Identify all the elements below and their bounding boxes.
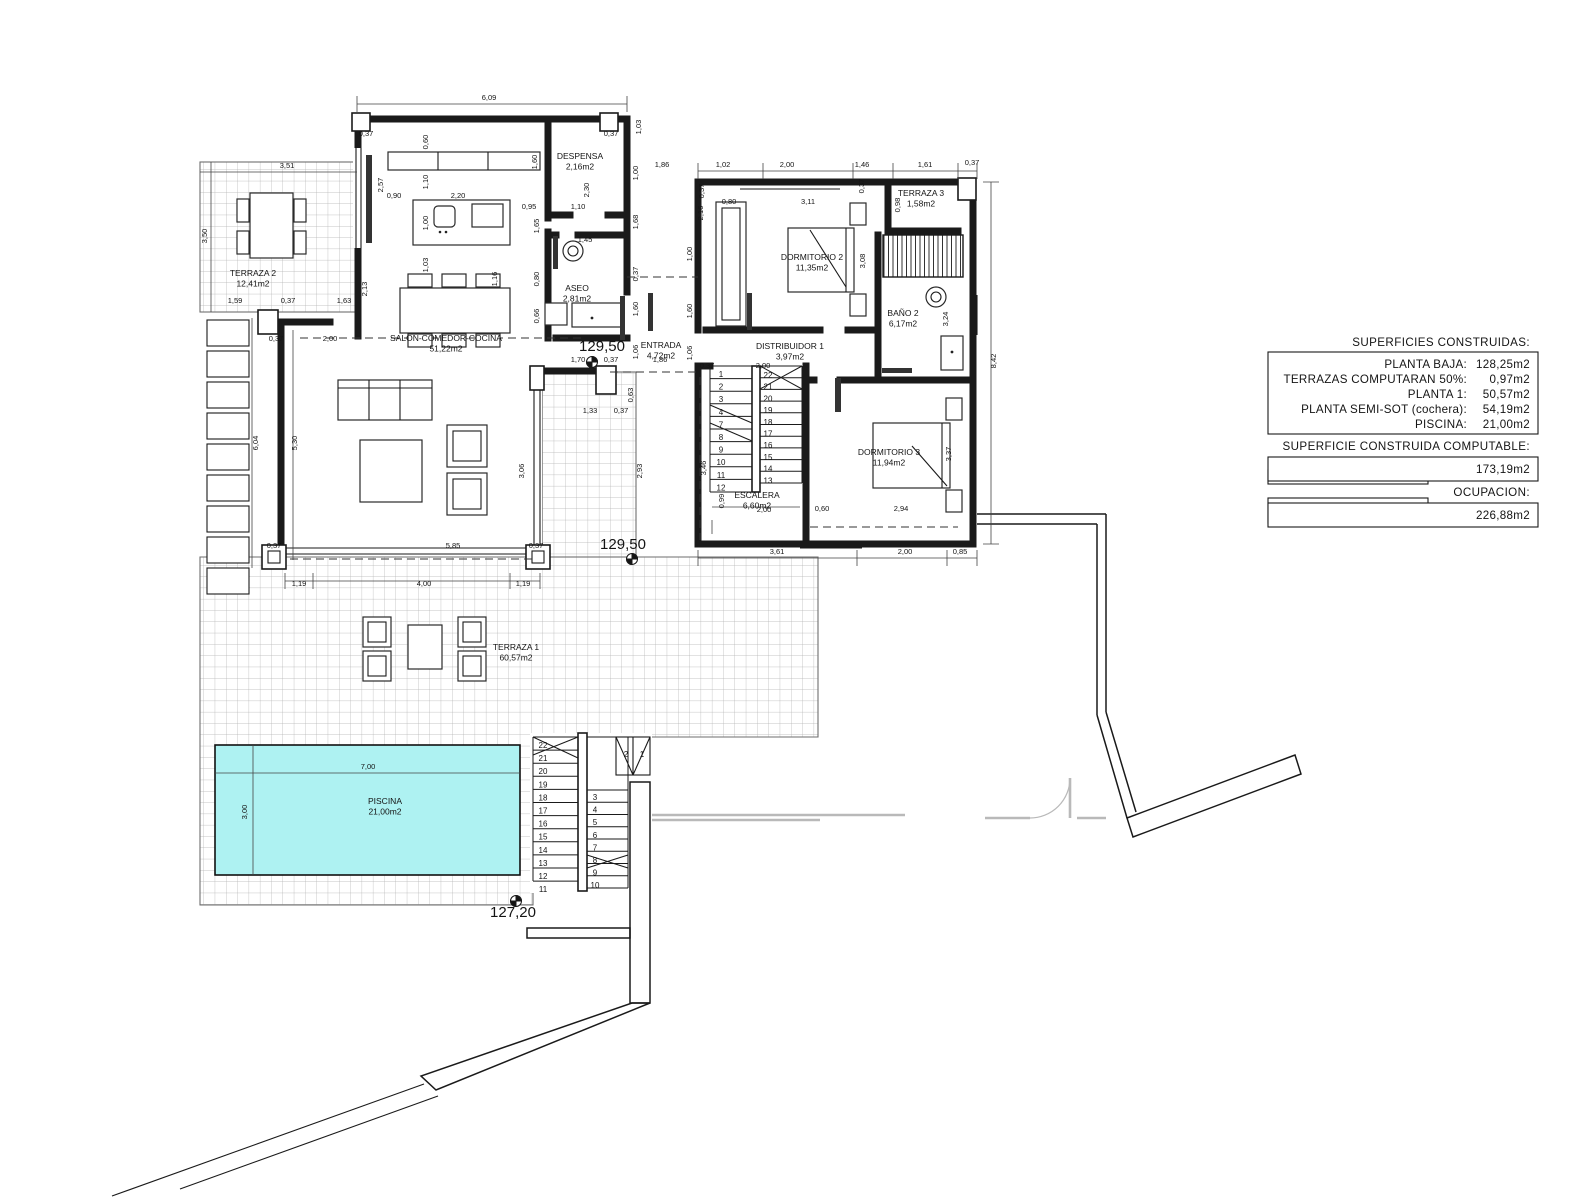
stair-step-number: 13 xyxy=(764,476,773,485)
stair-step-number: 5 xyxy=(593,818,598,827)
dimension-label: 0,37 xyxy=(604,355,619,364)
room-name: PISCINA xyxy=(368,796,402,806)
room-name: ESCALERA xyxy=(734,490,780,500)
dimension-label: 0,60 xyxy=(815,504,830,513)
sink xyxy=(434,206,455,227)
dimension-label: 3,37 xyxy=(944,447,953,462)
dimension-label: 0,37 xyxy=(965,158,980,167)
boundary-line xyxy=(180,1096,438,1189)
dim-line xyxy=(698,163,977,179)
nightstand xyxy=(946,398,962,420)
diagonal-wall-left xyxy=(421,1003,650,1090)
lower-stair-bg xyxy=(530,733,652,893)
dimension-label: 1,60 xyxy=(685,304,694,319)
stair-step-number: 19 xyxy=(764,406,773,415)
stair-step-number: 13 xyxy=(539,859,548,868)
info-ocupacion-value: 226,88m2 xyxy=(1476,509,1530,522)
stair-step-number: 22 xyxy=(764,371,773,380)
nightstand xyxy=(850,294,866,316)
room-area: 6,60m2 xyxy=(743,501,772,511)
dimension-label: 1,59 xyxy=(228,296,243,305)
stair-step-number: 12 xyxy=(717,483,726,492)
toilet xyxy=(926,287,946,307)
dimension-label: 0,90 xyxy=(387,191,402,200)
room-area: 6,17m2 xyxy=(889,319,918,329)
dimension-label: 5,30 xyxy=(290,436,299,451)
dimension-label: 5,85 xyxy=(446,541,461,550)
dimension-label: 4,00 xyxy=(417,579,432,588)
room-area: 3,97m2 xyxy=(776,352,805,362)
lounge-table xyxy=(408,625,442,669)
terrace-chair xyxy=(294,199,306,222)
stair-step-number: 1 xyxy=(640,750,645,759)
room-area: 60,57m2 xyxy=(499,653,532,663)
dimension-label: 1,06 xyxy=(631,345,640,360)
dimension-label: 0,37 xyxy=(700,361,715,370)
dimension-label: 0,37 xyxy=(529,541,544,550)
room-area: 4,72m2 xyxy=(647,351,676,361)
dimension-label: 1,00 xyxy=(421,216,430,231)
room-area: 11,35m2 xyxy=(796,263,829,273)
info-row-label: PLANTA BAJA: xyxy=(1384,358,1467,371)
stair-step-number: 3 xyxy=(593,793,598,802)
shower xyxy=(883,235,963,277)
dimension-label: 2,16 xyxy=(696,206,705,221)
door-leaf xyxy=(835,378,841,412)
level-value: 129,50 xyxy=(600,536,646,553)
stair-step-number: 9 xyxy=(593,869,598,878)
stair-step-number: 7 xyxy=(719,420,724,429)
planter-step xyxy=(207,506,249,532)
stair-step-number: 8 xyxy=(593,856,598,865)
stair-step-number: 2 xyxy=(624,750,629,759)
stair-step-number: 15 xyxy=(764,453,773,462)
dimension-label: 0,60 xyxy=(421,135,430,150)
room-name: SALON-COMEDOR-COCINA xyxy=(390,333,502,343)
planter-step xyxy=(207,475,249,501)
faucet-dot xyxy=(445,231,448,234)
dimension-label: 0,80 xyxy=(722,197,737,206)
dimension-label: 2,00 xyxy=(323,334,338,343)
dimension-label: 1,68 xyxy=(631,215,640,230)
room-name: TERRAZA 3 xyxy=(898,188,945,198)
dimension-label: 1,19 xyxy=(292,579,307,588)
dimension-label: 3,46 xyxy=(699,461,708,476)
dimension-label: 1,86 xyxy=(655,160,670,169)
dimension-label: 0,37 xyxy=(359,129,374,138)
stair-step-number: 18 xyxy=(764,418,773,427)
stair-step-number: 4 xyxy=(719,408,724,417)
stair-step-number: 20 xyxy=(764,394,773,403)
pilaster xyxy=(530,366,544,390)
room-name: ASEO xyxy=(565,283,589,293)
dimension-label: 1,61 xyxy=(918,160,933,169)
stair-step-number: 16 xyxy=(764,441,773,450)
door-leaf xyxy=(648,293,653,331)
dimension-label: 0,95 xyxy=(522,202,537,211)
dimension-label: 6,04 xyxy=(251,436,260,451)
dimension-label: 8,42 xyxy=(989,354,998,369)
stair-step-number: 14 xyxy=(764,465,773,474)
landing-step xyxy=(527,928,630,938)
dimension-label: 3,51 xyxy=(280,161,295,170)
boundary-line xyxy=(112,1084,424,1196)
floor-plan-page: 6,090,370,371,030,602,571,101,001,030,90… xyxy=(0,0,1583,1200)
room-name: TERRAZA 1 xyxy=(493,642,540,652)
dimension-label: 2,20 xyxy=(451,191,466,200)
dimension-label: 0,98 xyxy=(893,198,902,213)
pilaster xyxy=(596,366,616,394)
level-marker-quarter xyxy=(587,362,593,368)
info-row-label: PLANTA SEMI-SOT (cochera): xyxy=(1301,403,1467,416)
room-area: 2,81m2 xyxy=(563,294,592,304)
info-row-value: 0,97m2 xyxy=(1490,373,1530,386)
vanity-drain xyxy=(951,351,954,354)
dimension-label: 2,00 xyxy=(756,361,771,370)
pilaster xyxy=(258,310,278,334)
dimension-label: 1,10 xyxy=(421,175,430,190)
room-area: 11,94m2 xyxy=(873,458,906,468)
room-name: ENTRADA xyxy=(641,340,682,350)
info-row-value: 50,57m2 xyxy=(1483,388,1530,401)
planter-step xyxy=(207,382,249,408)
diagonal-wall-right xyxy=(1127,755,1301,837)
info-row-label: PLANTA 1: xyxy=(1408,388,1467,401)
stair-step-number: 2 xyxy=(719,383,724,392)
info-row-label: TERRAZAS COMPUTARAN 50%: xyxy=(1284,373,1468,386)
room-area: 51,22m2 xyxy=(429,344,462,354)
dimension-label: 0,37 xyxy=(614,406,629,415)
stair-step-number: 18 xyxy=(539,793,548,802)
dimension-label: 1,63 xyxy=(337,296,352,305)
dimension-label: 3,61 xyxy=(770,547,785,556)
window-blind xyxy=(366,155,372,243)
dining-chair xyxy=(408,274,432,287)
stair-step-number: 14 xyxy=(539,846,548,855)
dimension-label: 3,00 xyxy=(240,805,249,820)
stair-step-number: 9 xyxy=(719,446,724,455)
info-row-value: 54,19m2 xyxy=(1483,403,1530,416)
terrace-table xyxy=(250,193,293,258)
room-name: DORMITORIO 3 xyxy=(858,447,920,457)
stair-step-number: 12 xyxy=(539,872,548,881)
stair-step-number: 6 xyxy=(593,831,598,840)
room-name: DISTRIBUIDOR 1 xyxy=(756,341,824,351)
dimension-label: 2,00 xyxy=(898,547,913,556)
dimension-label: 0,37 xyxy=(269,334,284,343)
door-leaf xyxy=(620,296,625,340)
dimension-label: 1,60 xyxy=(530,155,539,170)
info-row-value: 21,00m2 xyxy=(1483,418,1530,431)
wardrobe xyxy=(716,202,746,326)
side-terrace-paving xyxy=(542,372,636,557)
door-leaf xyxy=(882,368,912,373)
upper-stair-divider xyxy=(752,366,760,492)
dimension-label: 1,33 xyxy=(583,406,598,415)
terrace-chair xyxy=(294,231,306,254)
dimension-label: 0,99 xyxy=(717,494,726,509)
dimension-label: 7,00 xyxy=(361,762,376,771)
room-name: DESPENSA xyxy=(557,151,604,161)
stair-step-number: 21 xyxy=(539,754,548,763)
room-name: DORMITORIO 2 xyxy=(781,252,843,262)
room-area: 12,41m2 xyxy=(236,279,269,289)
dimension-label: 3,11 xyxy=(801,197,815,206)
stair-step-number: 17 xyxy=(764,430,773,439)
stair-step-number: 16 xyxy=(539,820,548,829)
info-ocupacion-heading: OCUPACION: xyxy=(1453,486,1530,499)
terrace-chair xyxy=(237,199,249,222)
stair-step-number: 11 xyxy=(539,885,548,894)
sofa xyxy=(338,380,432,420)
dimension-label: 2,57 xyxy=(376,178,385,193)
dimension-label: 1,46 xyxy=(855,160,870,169)
cooktop xyxy=(472,204,503,227)
stair-step-number: 11 xyxy=(717,471,726,480)
stair-step-line xyxy=(710,405,752,423)
stair-step-number: 1 xyxy=(719,370,724,379)
dimension-label: 6,09 xyxy=(482,93,497,102)
dimension-label: 0,37 xyxy=(281,296,296,305)
dimension-label: 1,03 xyxy=(634,120,643,135)
lower-stair-divider xyxy=(578,733,587,891)
stair-step-number: 7 xyxy=(593,843,598,852)
dimension-label: 0,63 xyxy=(626,388,635,403)
info-heading: SUPERFICIES CONSTRUIDAS: xyxy=(1352,336,1530,349)
room-name: TERRAZA 2 xyxy=(230,268,277,278)
dimension-label: 3,08 xyxy=(858,254,867,269)
planter-step xyxy=(207,537,249,563)
stair-step-number: 21 xyxy=(764,383,773,392)
dimension-label: 1,02 xyxy=(716,160,731,169)
aseo-cabinet xyxy=(545,303,567,325)
stair-step-number: 4 xyxy=(593,806,598,815)
dimension-label: 1,00 xyxy=(631,166,640,181)
stair-step-number: 8 xyxy=(719,433,724,442)
planter-step xyxy=(207,413,249,439)
dimension-label: 3,24 xyxy=(941,312,950,327)
level-marker-quarter xyxy=(592,357,598,363)
dimension-label: 0,37 xyxy=(857,179,866,194)
room-area: 2,16m2 xyxy=(566,162,595,172)
stair-step-number: 17 xyxy=(539,807,548,816)
dimension-label: 1,65 xyxy=(532,219,541,234)
level-value: 129,50 xyxy=(579,338,625,355)
nightstand xyxy=(946,490,962,512)
dimension-label: 2,30 xyxy=(582,183,591,198)
dimension-label: 1,06 xyxy=(685,346,694,361)
stair-step-number: 20 xyxy=(539,767,548,776)
coffee-table xyxy=(360,440,422,502)
planter-step xyxy=(207,351,249,377)
room-name: BAÑO 2 xyxy=(887,308,918,318)
terrace-chair xyxy=(237,231,249,254)
stair-step-number: 19 xyxy=(539,780,548,789)
aseo-vanity xyxy=(572,303,622,327)
dimension-label: 2,94 xyxy=(894,504,909,513)
dining-chair xyxy=(442,274,466,287)
dimension-label: 1,45 xyxy=(578,235,593,244)
stair-step-line xyxy=(710,423,752,441)
dimension-label: 1,70 xyxy=(571,355,586,364)
dimension-label: 1,60 xyxy=(631,302,640,317)
info-computable-heading: SUPERFICIE CONSTRUIDA COMPUTABLE: xyxy=(1283,440,1530,453)
level-marker-quarter xyxy=(632,554,638,560)
stair-step-number: 15 xyxy=(539,833,548,842)
dimension-label: 0,80 xyxy=(532,272,541,287)
dimension-label: 1,03 xyxy=(421,258,430,273)
living-left-wall xyxy=(281,322,330,561)
dimension-label: 2,13 xyxy=(360,282,369,297)
stair-step-number: 10 xyxy=(591,881,600,890)
gate-swing-arc xyxy=(1030,778,1070,818)
planter-step xyxy=(207,320,249,346)
dimension-label: 1,10 xyxy=(571,202,586,211)
dimension-label: 3,50 xyxy=(200,229,209,244)
dimension-label: 2,00 xyxy=(780,160,795,169)
toilet xyxy=(563,241,583,261)
dimension-label: 0,37 xyxy=(631,267,640,282)
planter-step xyxy=(207,444,249,470)
retaining-wall-right xyxy=(977,514,1136,818)
planter-step xyxy=(207,568,249,594)
info-row-label: PISCINA: xyxy=(1415,418,1467,431)
dimension-label: 1,16 xyxy=(490,272,499,287)
vanity-drain xyxy=(591,317,594,320)
dimension-label: 0,37 xyxy=(604,129,619,138)
stair-step-number: 3 xyxy=(719,395,724,404)
level-value: 127,20 xyxy=(490,904,536,921)
room-area: 21,00m2 xyxy=(368,807,401,817)
floor-plan-drawing: 6,090,370,371,030,602,571,101,001,030,90… xyxy=(0,0,1583,1200)
stair-step-number: 10 xyxy=(717,458,726,467)
dining-table xyxy=(400,288,510,333)
door-leaf xyxy=(747,293,752,330)
room-area: 1,58m2 xyxy=(907,199,936,209)
info-computable-value: 173,19m2 xyxy=(1476,463,1530,476)
nightstand xyxy=(850,203,866,225)
dimension-label: 0,37 xyxy=(267,541,282,550)
stair-step-number: 22 xyxy=(539,741,548,750)
dimension-label: 3,06 xyxy=(517,464,526,479)
kitchen-counter xyxy=(388,152,540,170)
faucet-dot xyxy=(439,231,442,234)
pilaster xyxy=(958,178,976,200)
dimension-label: 0,66 xyxy=(532,309,541,324)
dimension-label: 1,19 xyxy=(516,579,531,588)
info-row-value: 128,25m2 xyxy=(1476,358,1530,371)
dimension-label: 1,00 xyxy=(685,247,694,262)
dimension-label: 0,85 xyxy=(953,547,968,556)
door-leaf xyxy=(553,236,558,269)
dimension-label: 0,37 xyxy=(697,184,706,199)
dimension-label: 2,93 xyxy=(635,464,644,479)
